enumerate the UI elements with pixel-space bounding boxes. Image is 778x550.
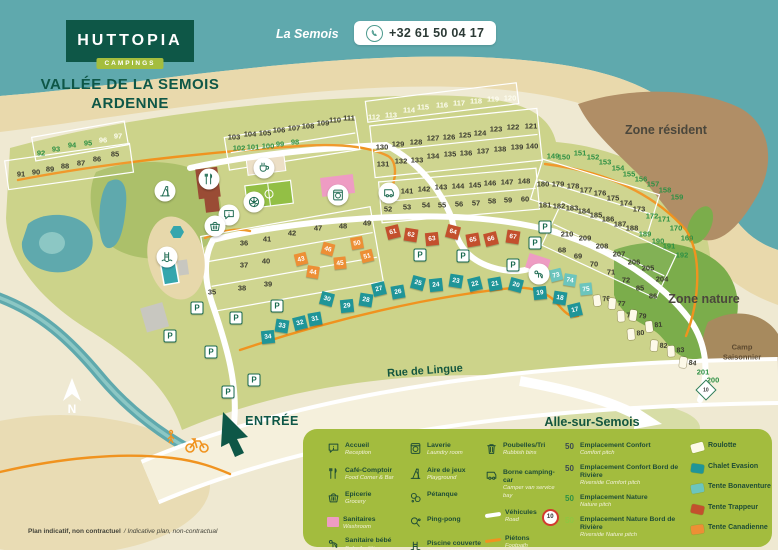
info-icon — [327, 442, 341, 460]
camp-saisonnier-label: Camp Saisonnier — [712, 342, 772, 362]
legend-item: Aire de jeuxPlayground — [409, 467, 493, 485]
legend-pitch-type: 50Emplacement Nature Bord de RivièreRive… — [565, 516, 689, 540]
petanque-icon — [409, 491, 423, 509]
pitch-count: 50 — [565, 464, 576, 473]
accommodation-swatch — [690, 524, 704, 535]
legend-item-text: Sanitaire bébéBaby facilities — [345, 537, 391, 550]
legend-col-2: LaverieLaundry roomAire de jeuxPlaygroun… — [409, 442, 493, 550]
legend-accommodation: Roulotte — [691, 442, 767, 456]
legend-col-1: AccueilReceptionCafé-ComptoirFood Corner… — [327, 442, 407, 550]
legend-item-text: Aire de jeuxPlayground — [427, 467, 466, 482]
cutlery-icon — [327, 467, 341, 485]
baby-icon — [327, 537, 341, 550]
legend-col-3: Poubelles/TriRubbish binsBorne camping-c… — [485, 442, 563, 550]
pinksq-icon — [327, 517, 339, 527]
legend-accommodation: Chalet Evasion — [691, 463, 767, 477]
legend-item-text: Pétanque — [427, 491, 458, 499]
legend-accommodation: Tente Bonaventure — [691, 483, 767, 497]
legend-item: VéhiculesRoad10 — [485, 509, 563, 526]
legend-item-text: Borne camping-carCamper van service bay — [503, 469, 563, 500]
site-title-line1: VALLÉE DE LA SEMOIS — [20, 76, 240, 95]
legend-pitch-type: 50Emplacement ConfortComfort pitch — [565, 442, 689, 457]
huttopia-logo: HUTTOPIA CAMPINGS — [66, 20, 194, 62]
soccer-field — [245, 180, 293, 208]
destination-label: Alle-sur-Semois — [544, 415, 639, 429]
legend-item-text: Ping-pong — [427, 516, 461, 524]
legend: AccueilReceptionCafé-ComptoirFood Corner… — [303, 429, 772, 547]
legend-item: Café-ComptoirFood Corner & Bar — [327, 467, 407, 485]
cafe-building-wing — [204, 195, 220, 213]
entrance-label: ENTRÉE — [245, 414, 299, 428]
legend-item-text: Tente Trappeur — [708, 504, 758, 512]
legend-item-text: Café-ComptoirFood Corner & Bar — [345, 467, 394, 482]
legend-item: LaverieLaundry room — [409, 442, 493, 460]
legend-item: Piscine couverteCovered swimming pool — [409, 540, 493, 550]
zone-nature-label: Zone nature — [668, 292, 740, 306]
legend-item: SanitairesWashroom — [327, 516, 407, 531]
legend-item: Sanitaire bébéBaby facilities — [327, 537, 407, 550]
legend-col-5: RoulotteChalet EvasionTente BonaventureT… — [691, 442, 767, 545]
legend-item: PiétonsFootpath — [485, 535, 563, 550]
cafe-building — [195, 167, 220, 199]
accommodation-swatch — [690, 463, 704, 474]
legend-item: EpicerieGrocery — [327, 491, 407, 509]
legend-item-text: PiétonsFootpath — [505, 535, 530, 550]
legend-item-text: Emplacement Confort Bord de RivièreRiver… — [580, 464, 689, 488]
pool-icon — [409, 540, 423, 550]
parking-lot-small — [177, 259, 189, 275]
legend-item-text: Emplacement NatureNature pitch — [580, 494, 648, 509]
compass-label: N — [68, 402, 77, 416]
legend-item-text: Chalet Evasion — [708, 463, 758, 471]
phone-badge[interactable]: +32 61 50 04 17 — [354, 21, 496, 45]
legend-item-text: VéhiculesRoad — [505, 509, 537, 524]
legend-accommodation: Tente Trappeur — [691, 504, 767, 518]
river-label: La Semois — [276, 27, 339, 41]
legend-item-text: Piscine couverteCovered swimming pool — [427, 540, 489, 550]
zone-resident-label: Zone résident — [625, 123, 707, 137]
legend-accommodation: Tente Canadienne — [691, 524, 767, 538]
legend-item-text: Roulotte — [708, 442, 736, 450]
basket-icon — [327, 491, 341, 509]
footpath-icon — [485, 538, 501, 543]
pond-highlight — [39, 232, 65, 254]
pitch-count: 50 — [565, 516, 576, 525]
legend-item: AccueilReception — [327, 442, 407, 460]
logo-wordmark: HUTTOPIA — [77, 32, 182, 50]
legend-item: Ping-pong — [409, 516, 493, 534]
site-title-line2: ARDENNE — [20, 95, 240, 114]
road-icon — [485, 512, 501, 518]
camper-icon — [485, 469, 499, 487]
legend-col-4: 50Emplacement ConfortComfort pitch50Empl… — [565, 442, 689, 546]
legend-item-text: EpicerieGrocery — [345, 491, 371, 506]
accommodation-swatch — [690, 483, 704, 494]
bin-icon — [485, 442, 499, 460]
legend-pitch-type: 50Emplacement NatureNature pitch — [565, 494, 689, 509]
logo-campings-badge: CAMPINGS — [96, 58, 163, 69]
legend-item-text: Emplacement ConfortComfort pitch — [580, 442, 651, 457]
phone-number: +32 61 50 04 17 — [389, 26, 484, 40]
sanitaires-building — [320, 174, 355, 197]
pingpong-icon — [409, 516, 423, 534]
pitch-count: 50 — [565, 494, 576, 503]
speed-limit-sign: 10 — [542, 509, 559, 526]
legend-item-text: Poubelles/TriRubbish bins — [503, 442, 545, 457]
legend-item-text: Emplacement Nature Bord de RivièreRivers… — [580, 516, 689, 540]
legend-item: Poubelles/TriRubbish bins — [485, 442, 563, 460]
legend-item-text: Tente Canadienne — [708, 524, 768, 532]
legend-item-text: Tente Bonaventure — [708, 483, 771, 491]
campsite-map: 9190898887868510310410510610710810911011… — [0, 0, 778, 550]
swimming-pool — [160, 259, 179, 285]
legend-item: Borne camping-carCamper van service bay — [485, 469, 563, 500]
slide-icon — [409, 467, 423, 485]
legend-item-text: LaverieLaundry room — [427, 442, 463, 457]
laundry-icon — [409, 442, 423, 460]
legend-pitch-type: 50Emplacement Confort Bord de RivièreRiv… — [565, 464, 689, 488]
accommodation-swatch — [690, 441, 705, 453]
accommodation-swatch — [690, 503, 705, 515]
phone-icon — [366, 25, 383, 42]
disclaimer: Plan indicatif, non contractuel/ Indicat… — [28, 528, 217, 535]
legend-item-text: AccueilReception — [345, 442, 371, 457]
pitch-count: 50 — [565, 442, 576, 451]
legend-item-text: SanitairesWashroom — [343, 516, 376, 531]
legend-item: Pétanque — [409, 491, 493, 509]
site-title: VALLÉE DE LA SEMOIS ARDENNE — [20, 76, 240, 114]
